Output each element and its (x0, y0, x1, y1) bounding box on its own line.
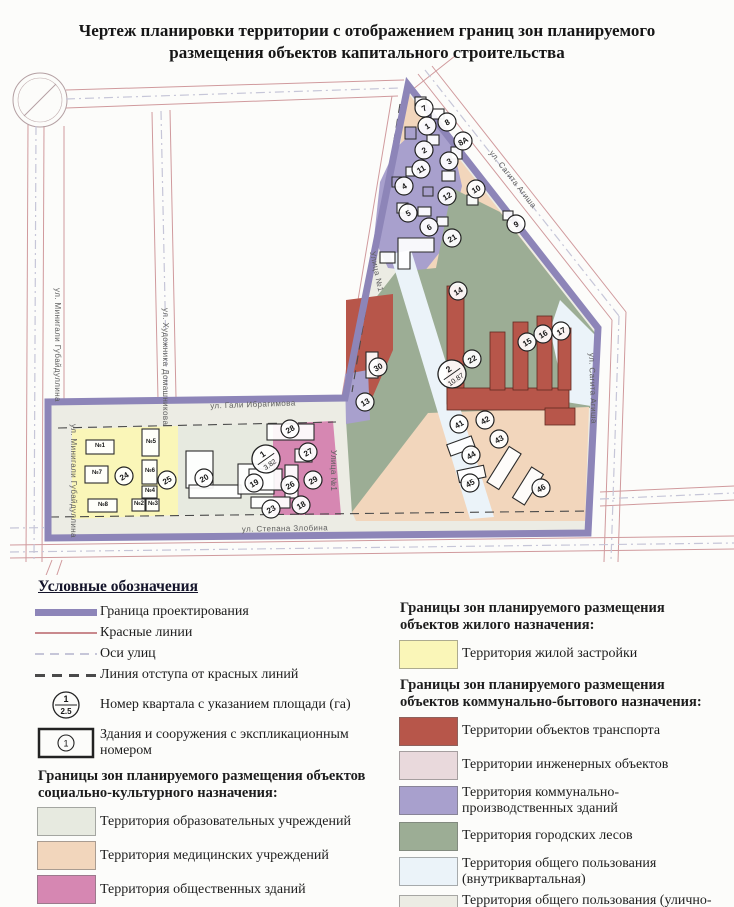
building-number-symbol: 1 (37, 727, 95, 759)
legend-item: Территории объектов транспорта (394, 717, 726, 746)
zone-swatch-medical (37, 841, 96, 870)
legend-item: Территория общественных зданий (32, 875, 394, 904)
building-marker: 23 (262, 500, 280, 518)
building-marker: 8А (454, 132, 472, 150)
legend-item: 1Здания и сооружения с экспликационным н… (32, 727, 394, 759)
legend-item-label: Граница проектирования (100, 604, 249, 620)
legend-item-label: Красные линии (100, 625, 192, 641)
legend-item-label: Территории инженерных объектов (462, 757, 668, 773)
legend-item: Территория общего пользования (внутриква… (394, 856, 726, 888)
svg-text:2.5: 2.5 (60, 707, 72, 716)
building-marker: 5 (399, 204, 417, 222)
title-line-1: Чертеж планировки территории с отображен… (0, 20, 734, 42)
legend-group-header: Границы зон планируемого размещения объе… (400, 677, 726, 712)
legend-item: Территория городских лесов (394, 822, 726, 851)
building-marker: 43 (490, 430, 508, 448)
legend-column-left: Условные обозначения Граница проектирова… (32, 578, 394, 907)
page-title: Чертеж планировки территории с отображен… (0, 20, 734, 64)
street-label: ул. Художника Домашникова (161, 308, 170, 425)
legend-item-label: Линия отступа от красных линий (100, 667, 298, 683)
legend-item-label: Номер квартала с указанием площади (га) (100, 697, 351, 713)
plan-sheet: Чертеж планировки территории с отображен… (0, 0, 734, 907)
legend-item: Линия отступа от красных линий (32, 667, 394, 683)
building-marker: 3 (440, 152, 458, 170)
building-marker: 15 (518, 333, 536, 351)
legend-item-label: Территория городских лесов (462, 828, 633, 844)
building-marker: 14 (449, 282, 467, 300)
building-marker: 30 (369, 358, 387, 376)
building-marker: 41 (450, 415, 468, 433)
zone-swatch-education (37, 807, 96, 836)
building-marker: 45 (461, 474, 479, 492)
house-number-label: №3 (148, 500, 159, 507)
legend-item-label: Территория общего пользования (внутриква… (462, 856, 726, 888)
building-marker: 9 (507, 215, 525, 233)
house-number-label: №4 (145, 487, 156, 494)
building-marker: 6 (420, 218, 438, 236)
building-marker: 19 (245, 474, 263, 492)
house-number-label: №6 (145, 467, 156, 474)
building-marker: 26 (281, 476, 299, 494)
building-marker: 29 (304, 471, 322, 489)
street-axis-symbol (35, 653, 97, 656)
building-marker: 46 (532, 479, 550, 497)
legend-group-header: Границы зон планируемого размещения объе… (38, 768, 394, 803)
building-marker: 16 (534, 325, 552, 343)
legend-item: Оси улиц (32, 646, 394, 662)
street-label: ул. Минигали Губайдуллина (69, 424, 78, 538)
legend-item: Территория жилой застройки (394, 640, 726, 669)
building-marker: 4 (395, 177, 413, 195)
boundary-line-symbol (35, 609, 97, 616)
building-marker: 44 (462, 446, 480, 464)
house-number-label: №8 (98, 501, 109, 508)
plan-map: ул. Минигали Губайдуллинаул. Минигали Гу… (0, 0, 734, 575)
legend-item-label: Территория общественных зданий (100, 882, 306, 898)
legend-item: Территория общего пользования (улично-до… (394, 893, 726, 907)
building-marker: 10 (467, 180, 485, 198)
svg-text:1: 1 (63, 694, 68, 704)
building-marker: 1 (418, 117, 436, 135)
building-marker: 17 (552, 322, 570, 340)
legend-item: Территория коммунально-производственных … (394, 785, 726, 817)
zone-swatch-public (37, 875, 96, 904)
legend-item: Территории инженерных объектов (394, 751, 726, 780)
legend-item: Красные линии (32, 625, 394, 641)
legend-item: Территория медицинских учреждений (32, 841, 394, 870)
legend-header: Условные обозначения (38, 578, 394, 596)
house-number-label: №1 (95, 442, 106, 449)
building-marker: 24 (115, 467, 133, 485)
zone-swatch-street_network (399, 895, 458, 907)
building-marker: 13 (356, 393, 374, 411)
building-marker: 22 (463, 350, 481, 368)
house-number-label: №5 (146, 438, 157, 445)
building-marker: 2 (415, 141, 433, 159)
building-marker: 21 (443, 229, 461, 247)
svg-text:1: 1 (63, 739, 68, 749)
legend-group-header: Границы зон планируемого размещения объе… (400, 600, 726, 635)
legend-item: 12.5Номер квартала с указанием площади (… (32, 688, 394, 722)
legend-item-label: Территория медицинских учреждений (100, 848, 329, 864)
legend-item: Территория образовательных учреждений (32, 807, 394, 836)
building-marker: 28 (281, 420, 299, 438)
building-marker: 7 (415, 99, 433, 117)
building-marker: 12 (438, 187, 456, 205)
legend-column-right: Границы зон планируемого размещения объе… (394, 592, 726, 907)
house-number-label: №2 (134, 500, 145, 507)
building-marker: 8 (438, 113, 456, 131)
building-marker: 42 (476, 411, 494, 429)
legend-item-label: Территория образовательных учреждений (100, 814, 351, 830)
quarter-number-symbol: 12.5 (49, 688, 83, 722)
building-marker: 20 (195, 469, 213, 487)
zone-swatch-communal (399, 786, 458, 815)
legend-item: Граница проектирования (32, 604, 394, 620)
legend-item-label: Здания и сооружения с экспликационным но… (100, 727, 394, 759)
building-marker: 27 (299, 443, 317, 461)
zone-swatch-forest (399, 822, 458, 851)
street-label: Улица №1 (329, 450, 338, 491)
title-line-2: размещения объектов капитального строите… (0, 42, 734, 64)
red-line-symbol (35, 632, 97, 634)
legend-item-label: Территория коммунально-производственных … (462, 785, 726, 817)
street-label: ул. Степана Злобина (242, 523, 328, 534)
zone-swatch-common_inner (399, 857, 458, 886)
zone-swatch-engineering (399, 751, 458, 780)
setback-line-symbol (35, 674, 97, 677)
building-marker: 18 (292, 496, 310, 514)
legend-item-label: Оси улиц (100, 646, 156, 662)
house-number-label: №7 (92, 469, 103, 476)
legend-item-label: Территория жилой застройки (462, 646, 637, 662)
zone-swatch-residential (399, 640, 458, 669)
zone-swatch-transport (399, 717, 458, 746)
legend: Условные обозначения Граница проектирова… (32, 578, 726, 907)
building-marker: 11 (412, 160, 430, 178)
legend-item-label: Территории объектов транспорта (462, 723, 660, 739)
building-marker: 25 (158, 471, 176, 489)
street-label: ул. Минигали Губайдуллина (53, 288, 62, 402)
legend-item-label: Территория общего пользования (улично-до… (462, 893, 726, 907)
